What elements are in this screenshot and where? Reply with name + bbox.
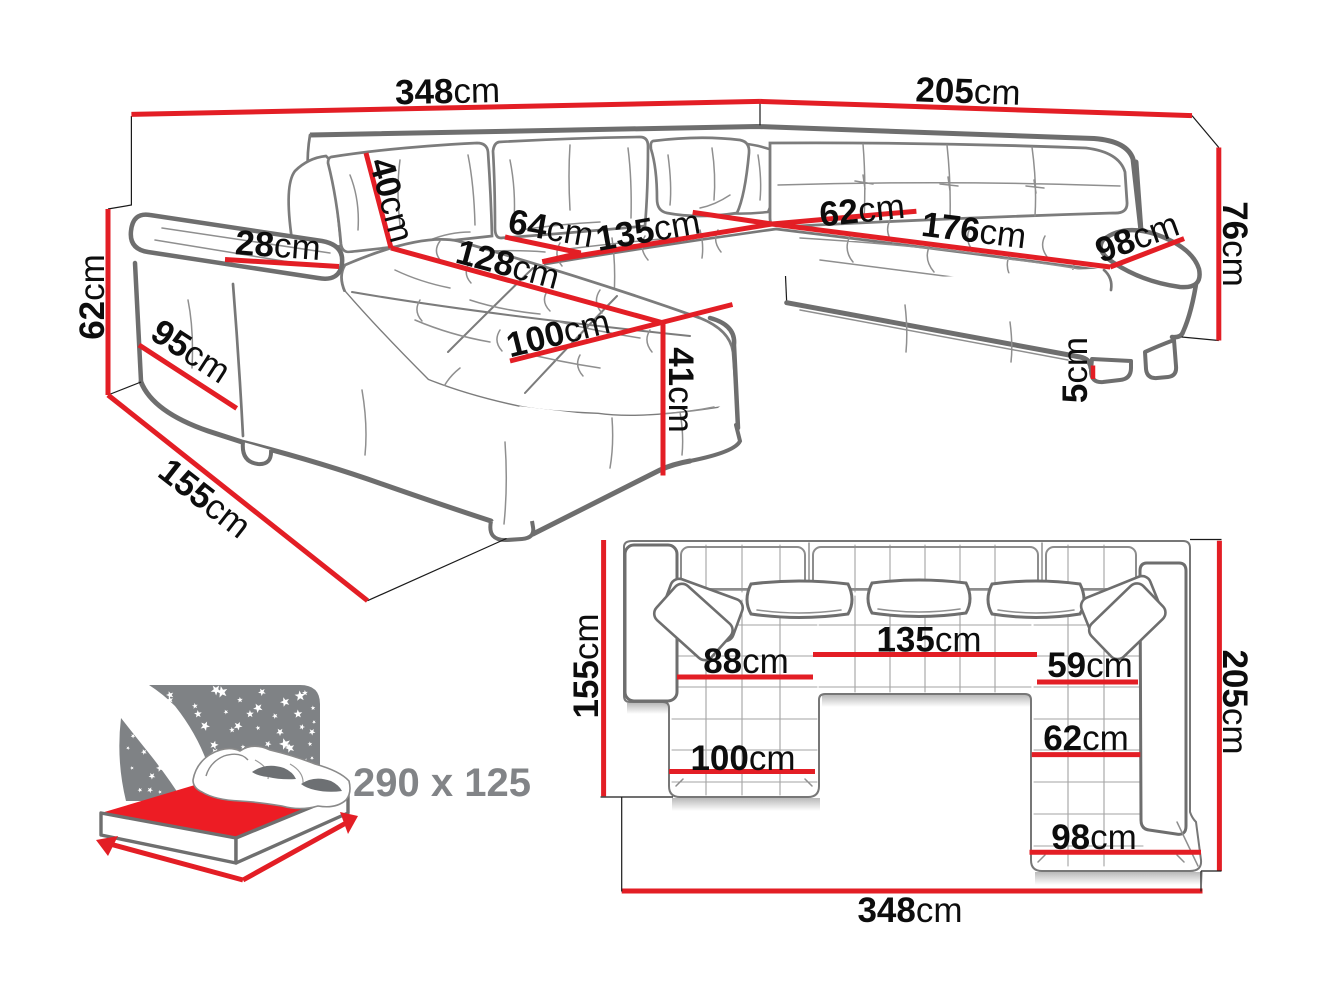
svg-text:348cm: 348cm [857,891,962,930]
svg-text:62cm: 62cm [73,254,112,340]
svg-text:62cm: 62cm [1043,719,1129,758]
svg-text:205cm: 205cm [915,70,1021,112]
svg-text:88cm: 88cm [703,642,789,681]
svg-text:290 x 125: 290 x 125 [353,761,531,805]
svg-text:348cm: 348cm [395,71,501,112]
svg-text:205cm: 205cm [1215,649,1254,754]
svg-text:76cm: 76cm [1215,201,1254,287]
svg-text:100cm: 100cm [690,739,795,778]
svg-text:5cm: 5cm [1056,337,1095,403]
svg-text:155cm: 155cm [567,613,606,718]
svg-text:41cm: 41cm [661,347,700,433]
svg-text:98cm: 98cm [1051,818,1137,857]
svg-text:28cm: 28cm [234,223,322,268]
svg-text:59cm: 59cm [1047,646,1133,685]
svg-text:135cm: 135cm [876,621,981,660]
